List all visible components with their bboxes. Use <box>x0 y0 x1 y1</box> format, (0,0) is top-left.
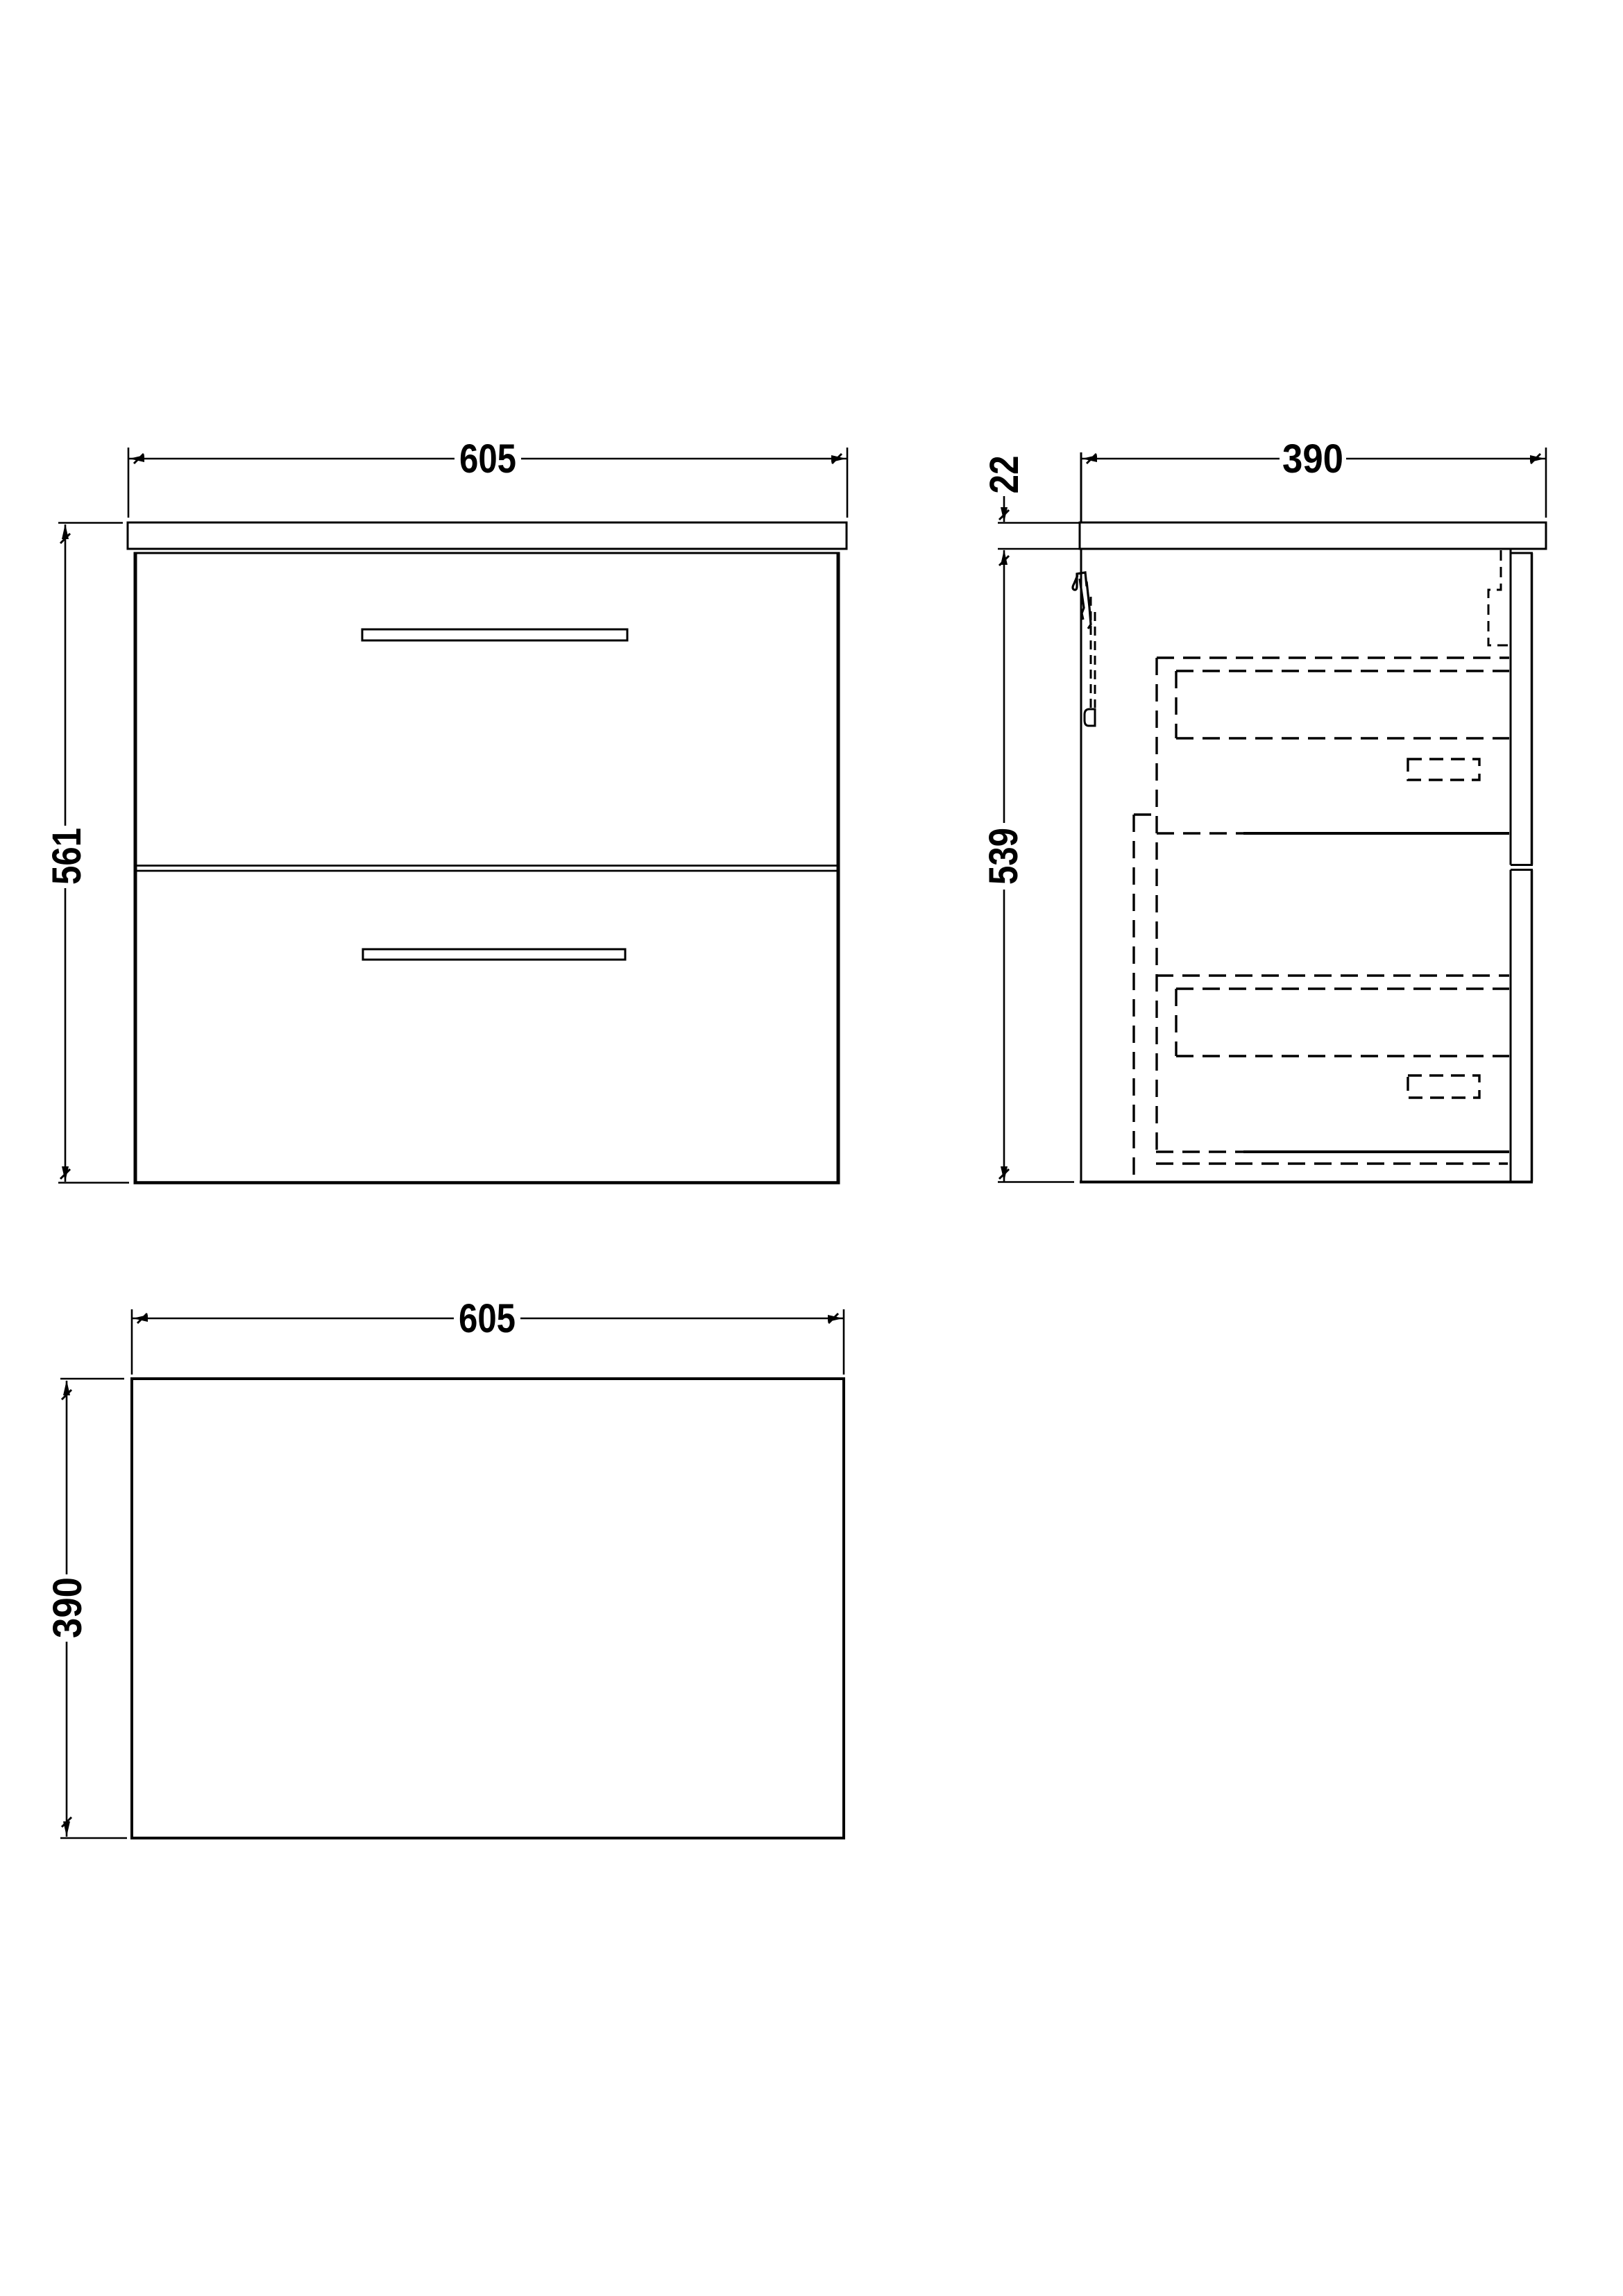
svg-text:605: 605 <box>459 1296 516 1341</box>
svg-text:539: 539 <box>981 828 1026 885</box>
svg-text:22: 22 <box>982 456 1027 494</box>
svg-text:605: 605 <box>459 436 516 482</box>
svg-text:390: 390 <box>45 1577 90 1638</box>
svg-text:390: 390 <box>1282 436 1343 482</box>
svg-text:561: 561 <box>44 828 90 885</box>
